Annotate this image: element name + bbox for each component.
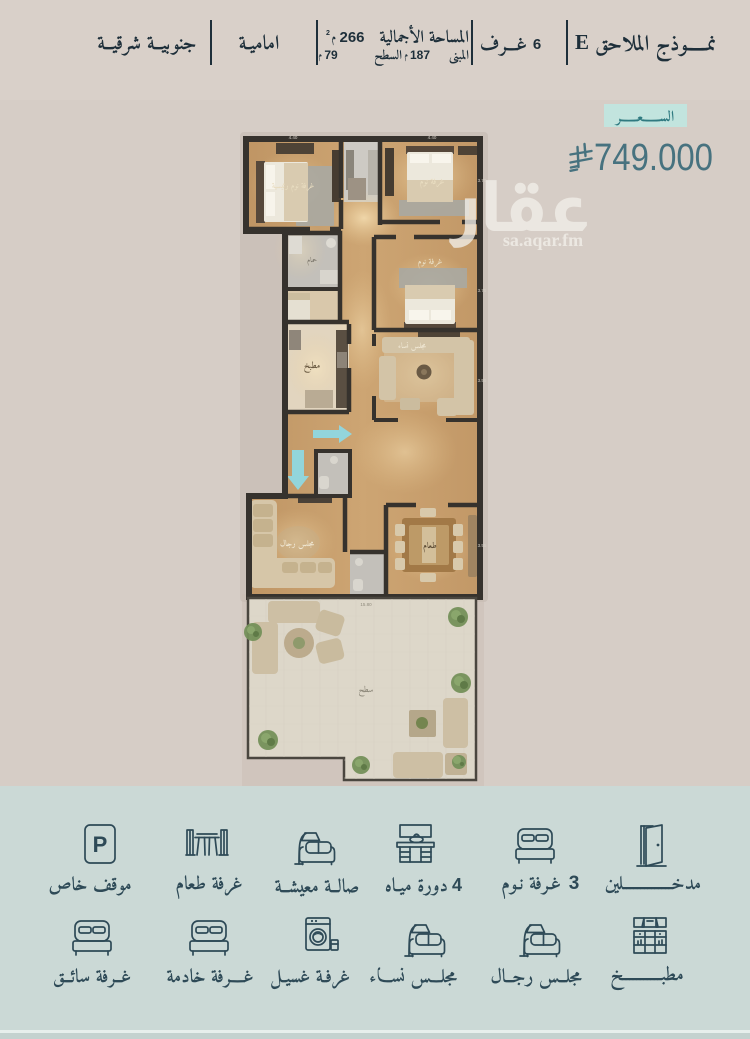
svg-text:P: P	[93, 832, 108, 857]
svg-text:6: 6	[533, 36, 541, 53]
svg-text:E: E	[575, 30, 589, 54]
svg-text:3.55: 3.55	[478, 543, 487, 548]
svg-text:4.40: 4.40	[428, 135, 437, 140]
svg-text:15.80: 15.80	[360, 602, 372, 607]
svg-text:sa.aqar.fm: sa.aqar.fm	[503, 230, 583, 250]
svg-text:3.75: 3.75	[478, 288, 487, 293]
svg-text:3: 3	[569, 873, 580, 894]
svg-text:4.40: 4.40	[289, 135, 298, 140]
svg-text:79: 79	[324, 48, 338, 62]
svg-text:749.000: 749.000	[594, 137, 713, 179]
svg-text:4: 4	[452, 875, 462, 895]
svg-text:3.70: 3.70	[478, 178, 487, 183]
svg-text:187: 187	[410, 48, 430, 62]
svg-text:2: 2	[326, 30, 330, 37]
svg-text:3.55: 3.55	[478, 378, 487, 383]
svg-text:266: 266	[339, 29, 364, 46]
